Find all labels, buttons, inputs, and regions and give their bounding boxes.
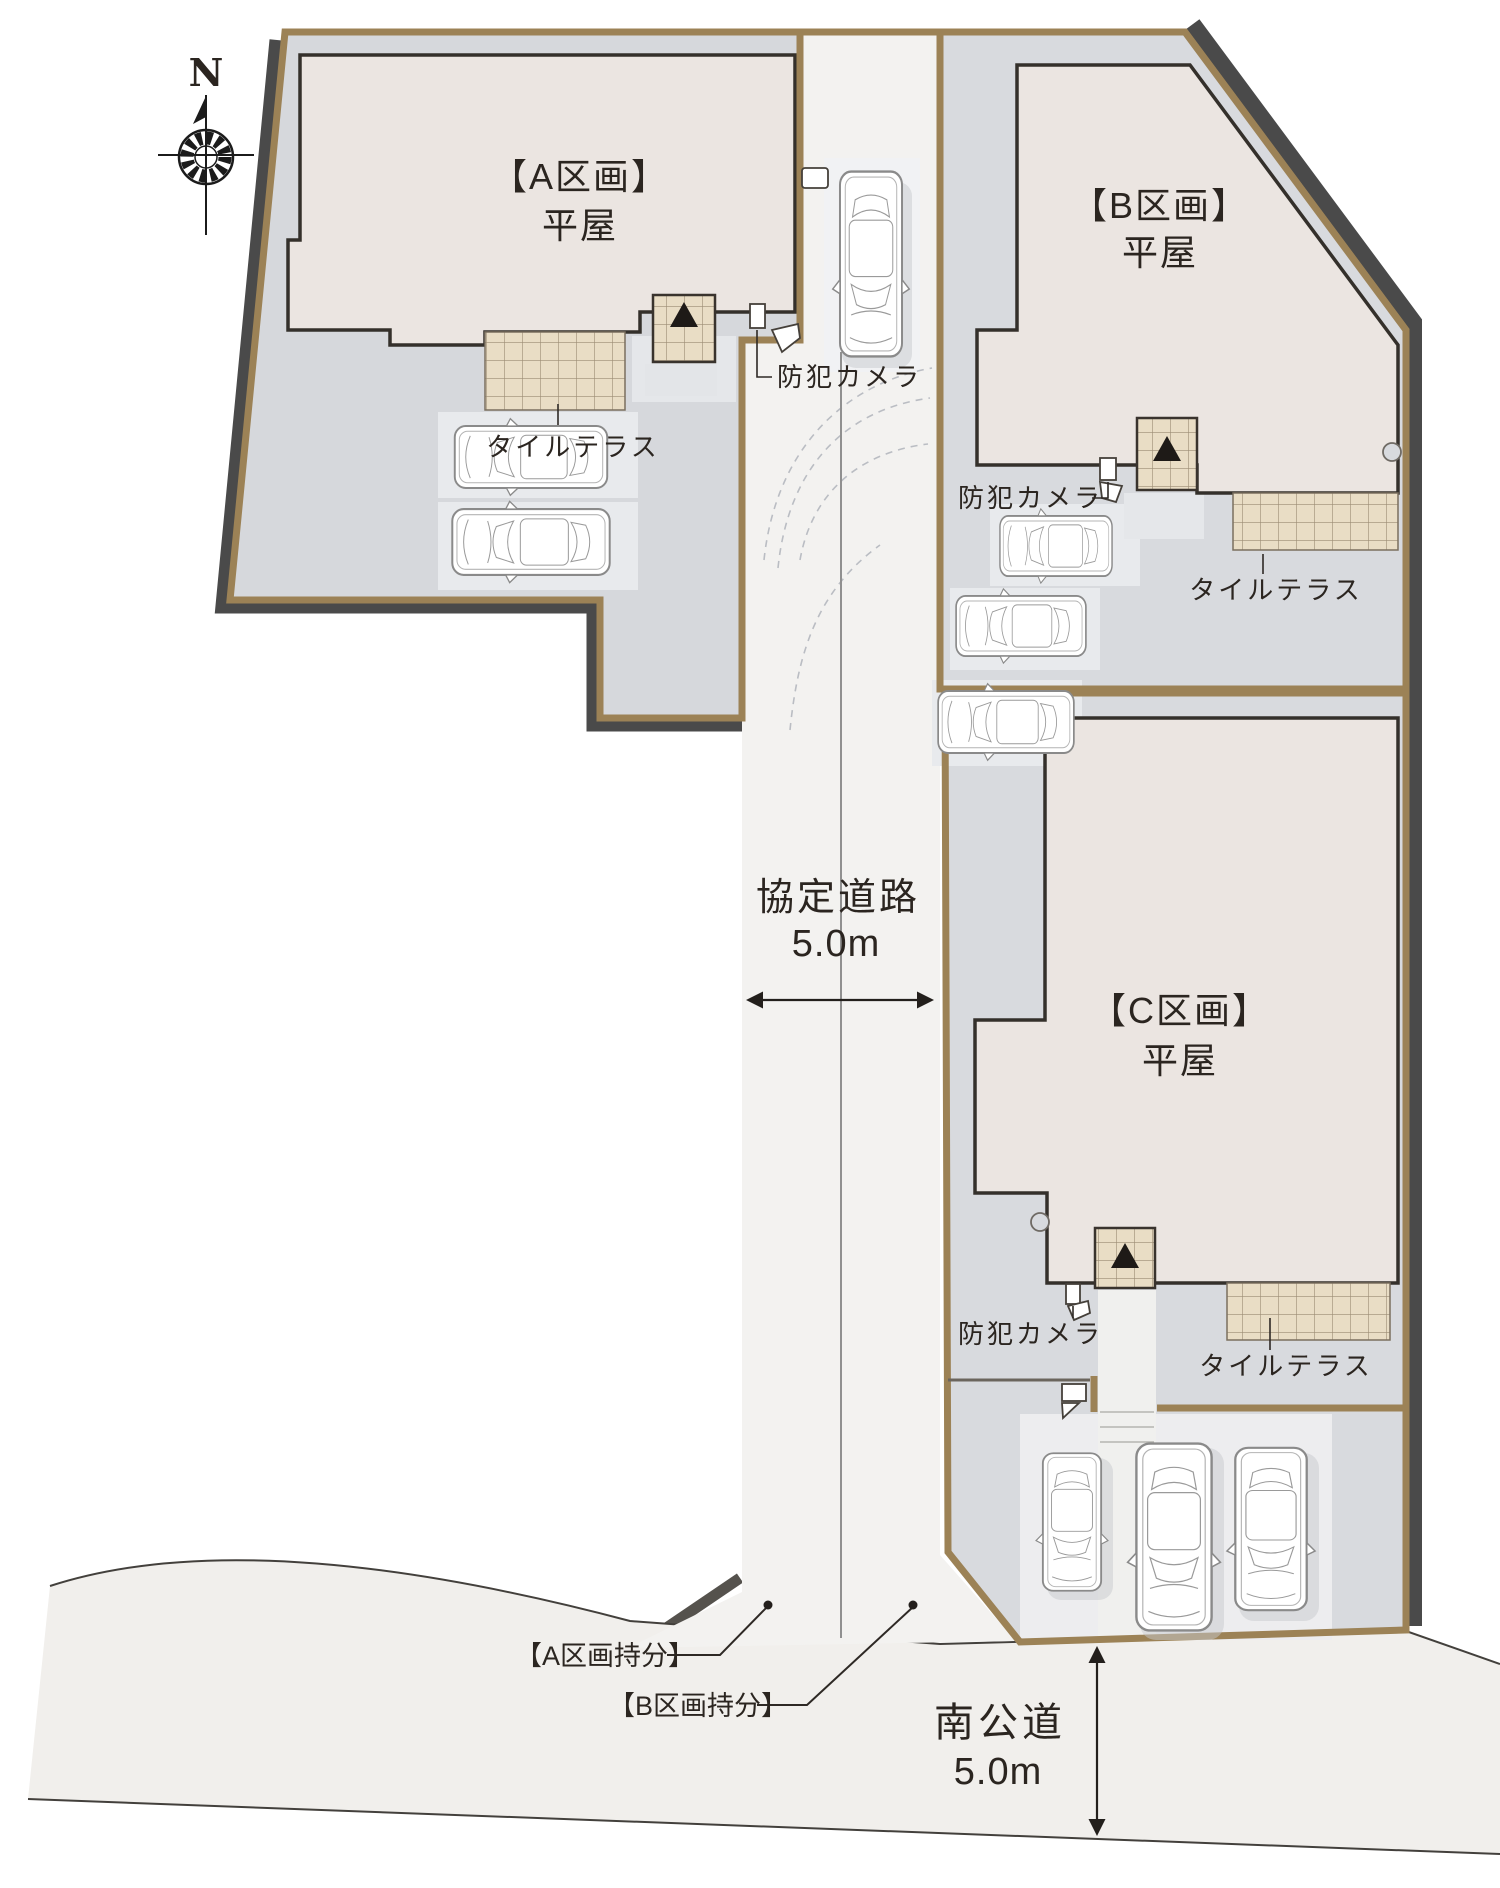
- tile-terrace-b: [1233, 493, 1398, 550]
- compass-icon: N: [158, 50, 254, 235]
- site-plan-svg: N 【A区画】 平屋 【B区画】 平屋 【C区画】 平屋 タイルテラス タイルテ…: [0, 0, 1500, 1888]
- lot-c-name-label: 【C区画】: [1090, 990, 1270, 1031]
- utility-marker-icon: [1383, 443, 1401, 461]
- car-icon: [1000, 509, 1112, 583]
- tile-terrace-label-a: タイルテラス: [486, 432, 659, 462]
- car-icon: [452, 501, 609, 582]
- south-road-width: 5.0m: [954, 1751, 1042, 1793]
- share-label-a: 【A区画持分】: [515, 1641, 695, 1671]
- car-icon: [833, 172, 910, 357]
- shared-road-name: 協定道路: [756, 877, 920, 919]
- lot-a-type-label: 平屋: [542, 205, 618, 246]
- utility-marker-icon: [1031, 1213, 1049, 1231]
- car-icon: [1227, 1448, 1315, 1610]
- lot-c-type-label: 平屋: [1142, 1040, 1218, 1081]
- leader-dot: [909, 1601, 918, 1610]
- security-camera-label-b: 防犯カメラ: [958, 483, 1103, 513]
- share-label-b: 【B区画持分】: [608, 1691, 788, 1721]
- car-icon: [1036, 1453, 1108, 1591]
- lot-b-type-label: 平屋: [1122, 232, 1198, 273]
- site-plan: N 【A区画】 平屋 【B区画】 平屋 【C区画】 平屋 タイルテラス タイルテ…: [0, 0, 1500, 1888]
- car-icon: [1128, 1444, 1221, 1631]
- tile-terrace-a: [485, 332, 625, 410]
- car-icon: [938, 684, 1074, 761]
- lot-b-name-label: 【B区画】: [1071, 185, 1249, 226]
- leader-dot: [764, 1601, 773, 1610]
- tile-terrace-label-c: タイルテラス: [1199, 1351, 1372, 1381]
- shared-road-width: 5.0m: [792, 923, 880, 965]
- lot-a-name-label: 【A区画】: [491, 156, 669, 197]
- tile-terrace-label-b: タイルテラス: [1189, 575, 1362, 605]
- building-a: [288, 55, 795, 345]
- tile-terrace-c: [1227, 1283, 1390, 1340]
- security-camera-label-a: 防犯カメラ: [777, 362, 922, 392]
- car-icon: [956, 589, 1086, 663]
- south-road-name: 南公道: [934, 1701, 1066, 1745]
- security-camera-label-c: 防犯カメラ: [958, 1319, 1103, 1349]
- compass-north-label: N: [189, 50, 224, 95]
- utility-box-icon: [802, 168, 828, 188]
